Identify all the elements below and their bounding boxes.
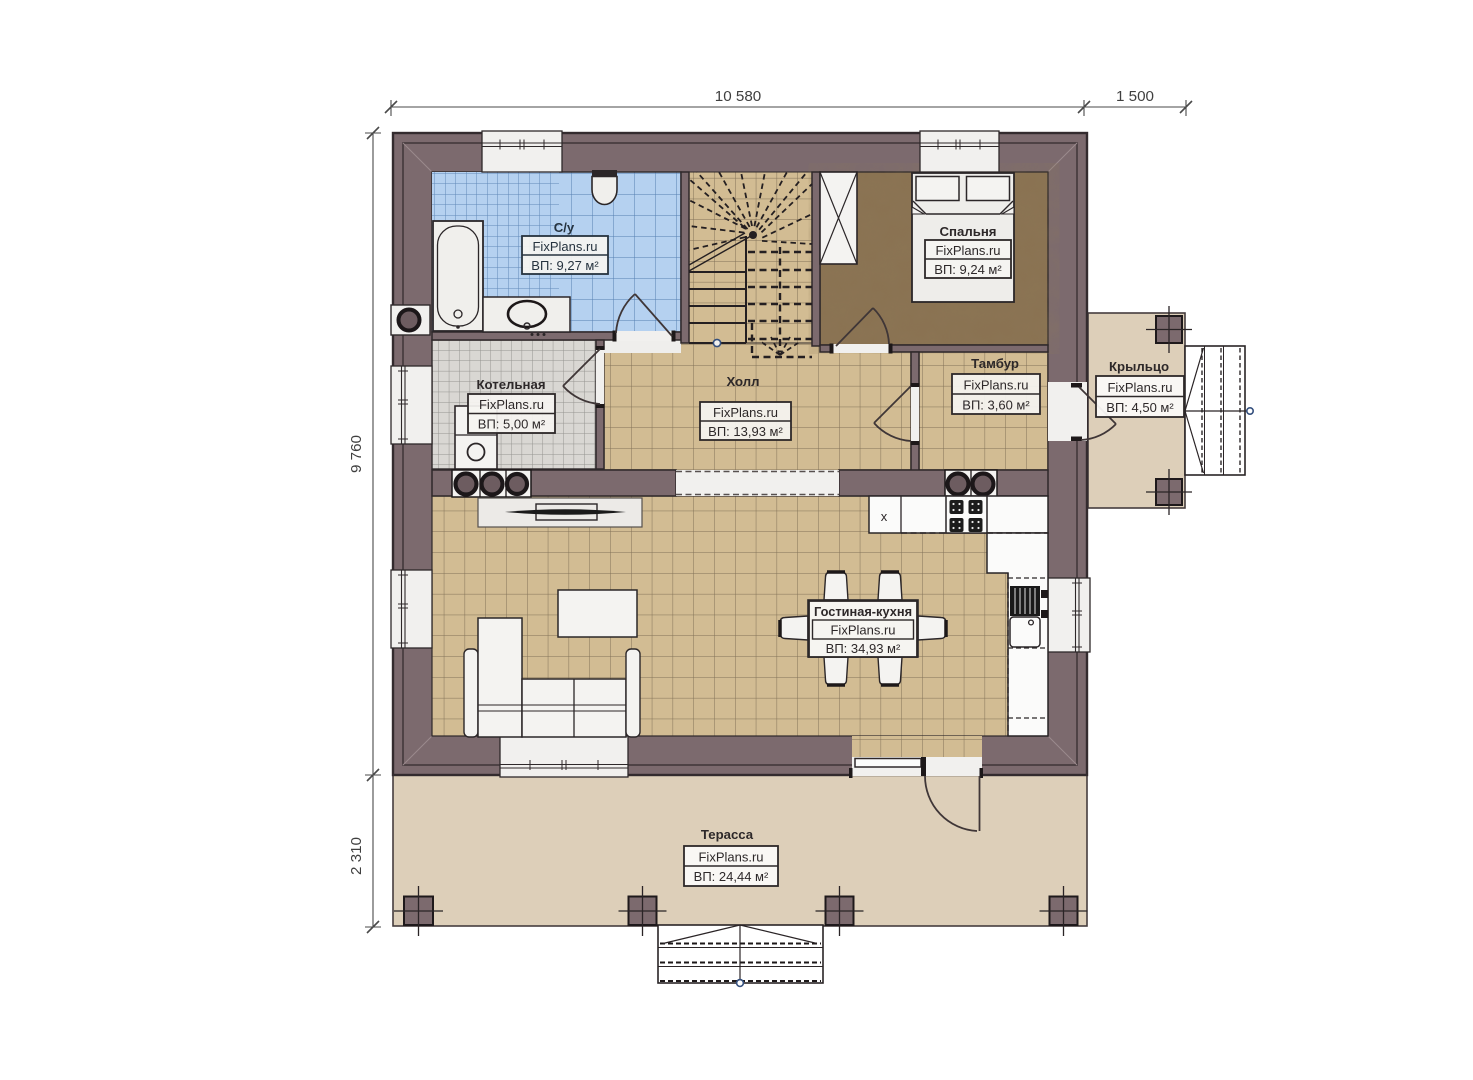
svg-text:х: х [881, 509, 888, 524]
svg-text:ВП: 24,44 м²: ВП: 24,44 м² [694, 869, 769, 884]
svg-text:9 760: 9 760 [348, 435, 365, 473]
svg-text:ВП: 9,24 м²: ВП: 9,24 м² [934, 262, 1002, 277]
svg-text:FixPlans.ru: FixPlans.ru [1107, 380, 1172, 395]
svg-text:2 310: 2 310 [348, 837, 365, 875]
svg-text:FixPlans.ru: FixPlans.ru [479, 397, 544, 412]
svg-text:FixPlans.ru: FixPlans.ru [963, 378, 1028, 393]
svg-text:С/у: С/у [554, 220, 575, 235]
svg-text:1 500: 1 500 [1116, 88, 1154, 105]
svg-text:FixPlans.ru: FixPlans.ru [698, 850, 763, 865]
svg-text:ВП: 3,60 м²: ВП: 3,60 м² [962, 398, 1030, 413]
svg-text:Тамбур: Тамбур [971, 356, 1019, 371]
svg-text:ВП: 5,00 м²: ВП: 5,00 м² [478, 417, 546, 432]
svg-text:10 580: 10 580 [715, 88, 761, 105]
svg-text:ВП: 34,93 м²: ВП: 34,93 м² [826, 641, 901, 656]
svg-text:FixPlans.ru: FixPlans.ru [830, 623, 895, 638]
svg-text:FixPlans.ru: FixPlans.ru [532, 239, 597, 254]
svg-text:Котельная: Котельная [476, 377, 545, 392]
svg-text:ВП: 13,93 м²: ВП: 13,93 м² [708, 424, 783, 439]
svg-text:Крыльцо: Крыльцо [1109, 359, 1169, 374]
svg-text:Терасса: Терасса [701, 827, 754, 842]
svg-text:Гостиная-кухня: Гостиная-кухня [814, 604, 912, 619]
svg-text:ВП: 9,27 м²: ВП: 9,27 м² [531, 258, 599, 273]
svg-text:FixPlans.ru: FixPlans.ru [935, 243, 1000, 258]
svg-text:ВП: 4,50 м²: ВП: 4,50 м² [1106, 400, 1174, 415]
svg-text:FixPlans.ru: FixPlans.ru [713, 405, 778, 420]
svg-text:Холл: Холл [726, 374, 759, 389]
svg-text:Спальня: Спальня [940, 224, 997, 239]
